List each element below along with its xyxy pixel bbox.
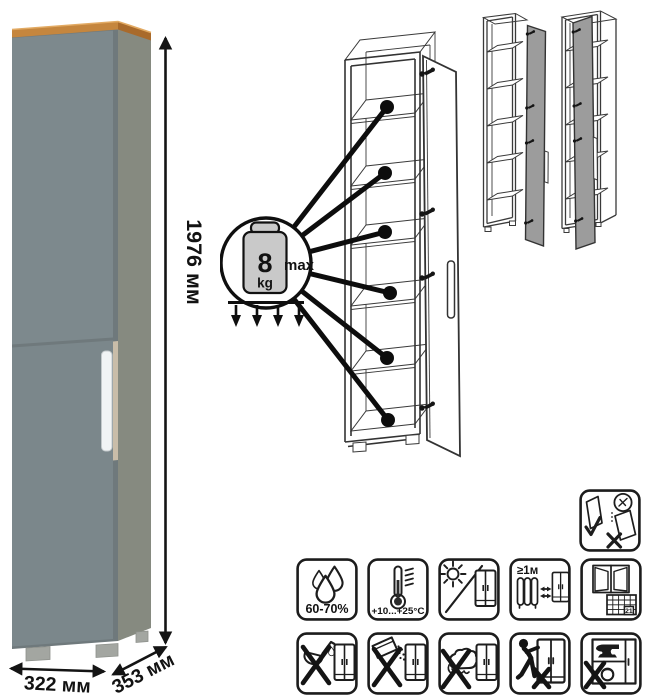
temperature-range-icon: +10...+25°C — [367, 558, 429, 621]
handle-recess — [113, 341, 118, 461]
cabinet-upper-door — [12, 31, 113, 345]
width-dimension-arrow — [11, 669, 104, 672]
temperature-label: +10...+25°C — [372, 605, 425, 616]
kettlebell-icon — [602, 669, 614, 681]
avoid-direct-sunlight-icon — [438, 558, 500, 621]
radiator-icon — [518, 578, 538, 608]
width-dimension-label: 322 мм — [23, 672, 91, 697]
humidity-range-icon: 60-70% — [296, 558, 358, 621]
shelves — [351, 93, 430, 431]
product-photo: 1976 мм 322 мм 353 мм — [0, 0, 218, 700]
no-aggressive-liquids-icon — [296, 632, 358, 695]
door-variant-drawings — [470, 4, 648, 252]
variant-door-right — [484, 14, 549, 247]
product-sheet: 1976 мм 322 мм 353 мм — [0, 0, 648, 700]
ventilation-period-icon: 21 — [580, 558, 642, 621]
variant-door-panel — [573, 17, 595, 250]
door-handle — [102, 351, 113, 451]
open-window-icon — [593, 566, 629, 593]
calendar-day-label: 21 — [625, 608, 633, 615]
max-load-value: 8 — [257, 248, 272, 278]
wardrobe-glyph — [552, 572, 568, 601]
no-dragging-icon — [509, 632, 571, 695]
no-abrasive-powders-icon — [367, 632, 429, 695]
wardrobe-glyph — [477, 645, 497, 681]
shelf-load-diagram: 8 kg max — [220, 10, 480, 565]
wardrobe-glyph — [335, 645, 355, 681]
cabinet-foot — [96, 644, 118, 658]
cabinet-foot — [26, 647, 50, 662]
calendar-icon: 21 — [607, 595, 636, 615]
humidity-label: 60-70% — [305, 602, 348, 616]
door-storage-instruction-icon — [579, 489, 641, 552]
no-heavy-overload-icon — [580, 632, 642, 695]
distance-label: ≥1м — [517, 565, 538, 577]
min-distance-from-heat-icon: ≥1м — [509, 558, 571, 621]
max-load-qualifier: max — [284, 257, 315, 274]
height-dimension-label: 1976 мм — [182, 219, 206, 305]
wardrobe-glyph — [476, 571, 496, 607]
variant-door-panel — [526, 26, 546, 247]
open-door — [423, 56, 460, 456]
depth-dimension-label: 353 мм — [109, 649, 179, 699]
max-load-unit: kg — [257, 276, 273, 291]
no-wet-cleaning-icon — [438, 632, 500, 695]
variant-door-left — [562, 11, 616, 249]
wardrobe-glyph — [406, 645, 426, 681]
cabinet-foot — [136, 631, 148, 643]
cabinet-side-panel — [118, 29, 151, 641]
cabinet-lower-door — [12, 341, 113, 647]
